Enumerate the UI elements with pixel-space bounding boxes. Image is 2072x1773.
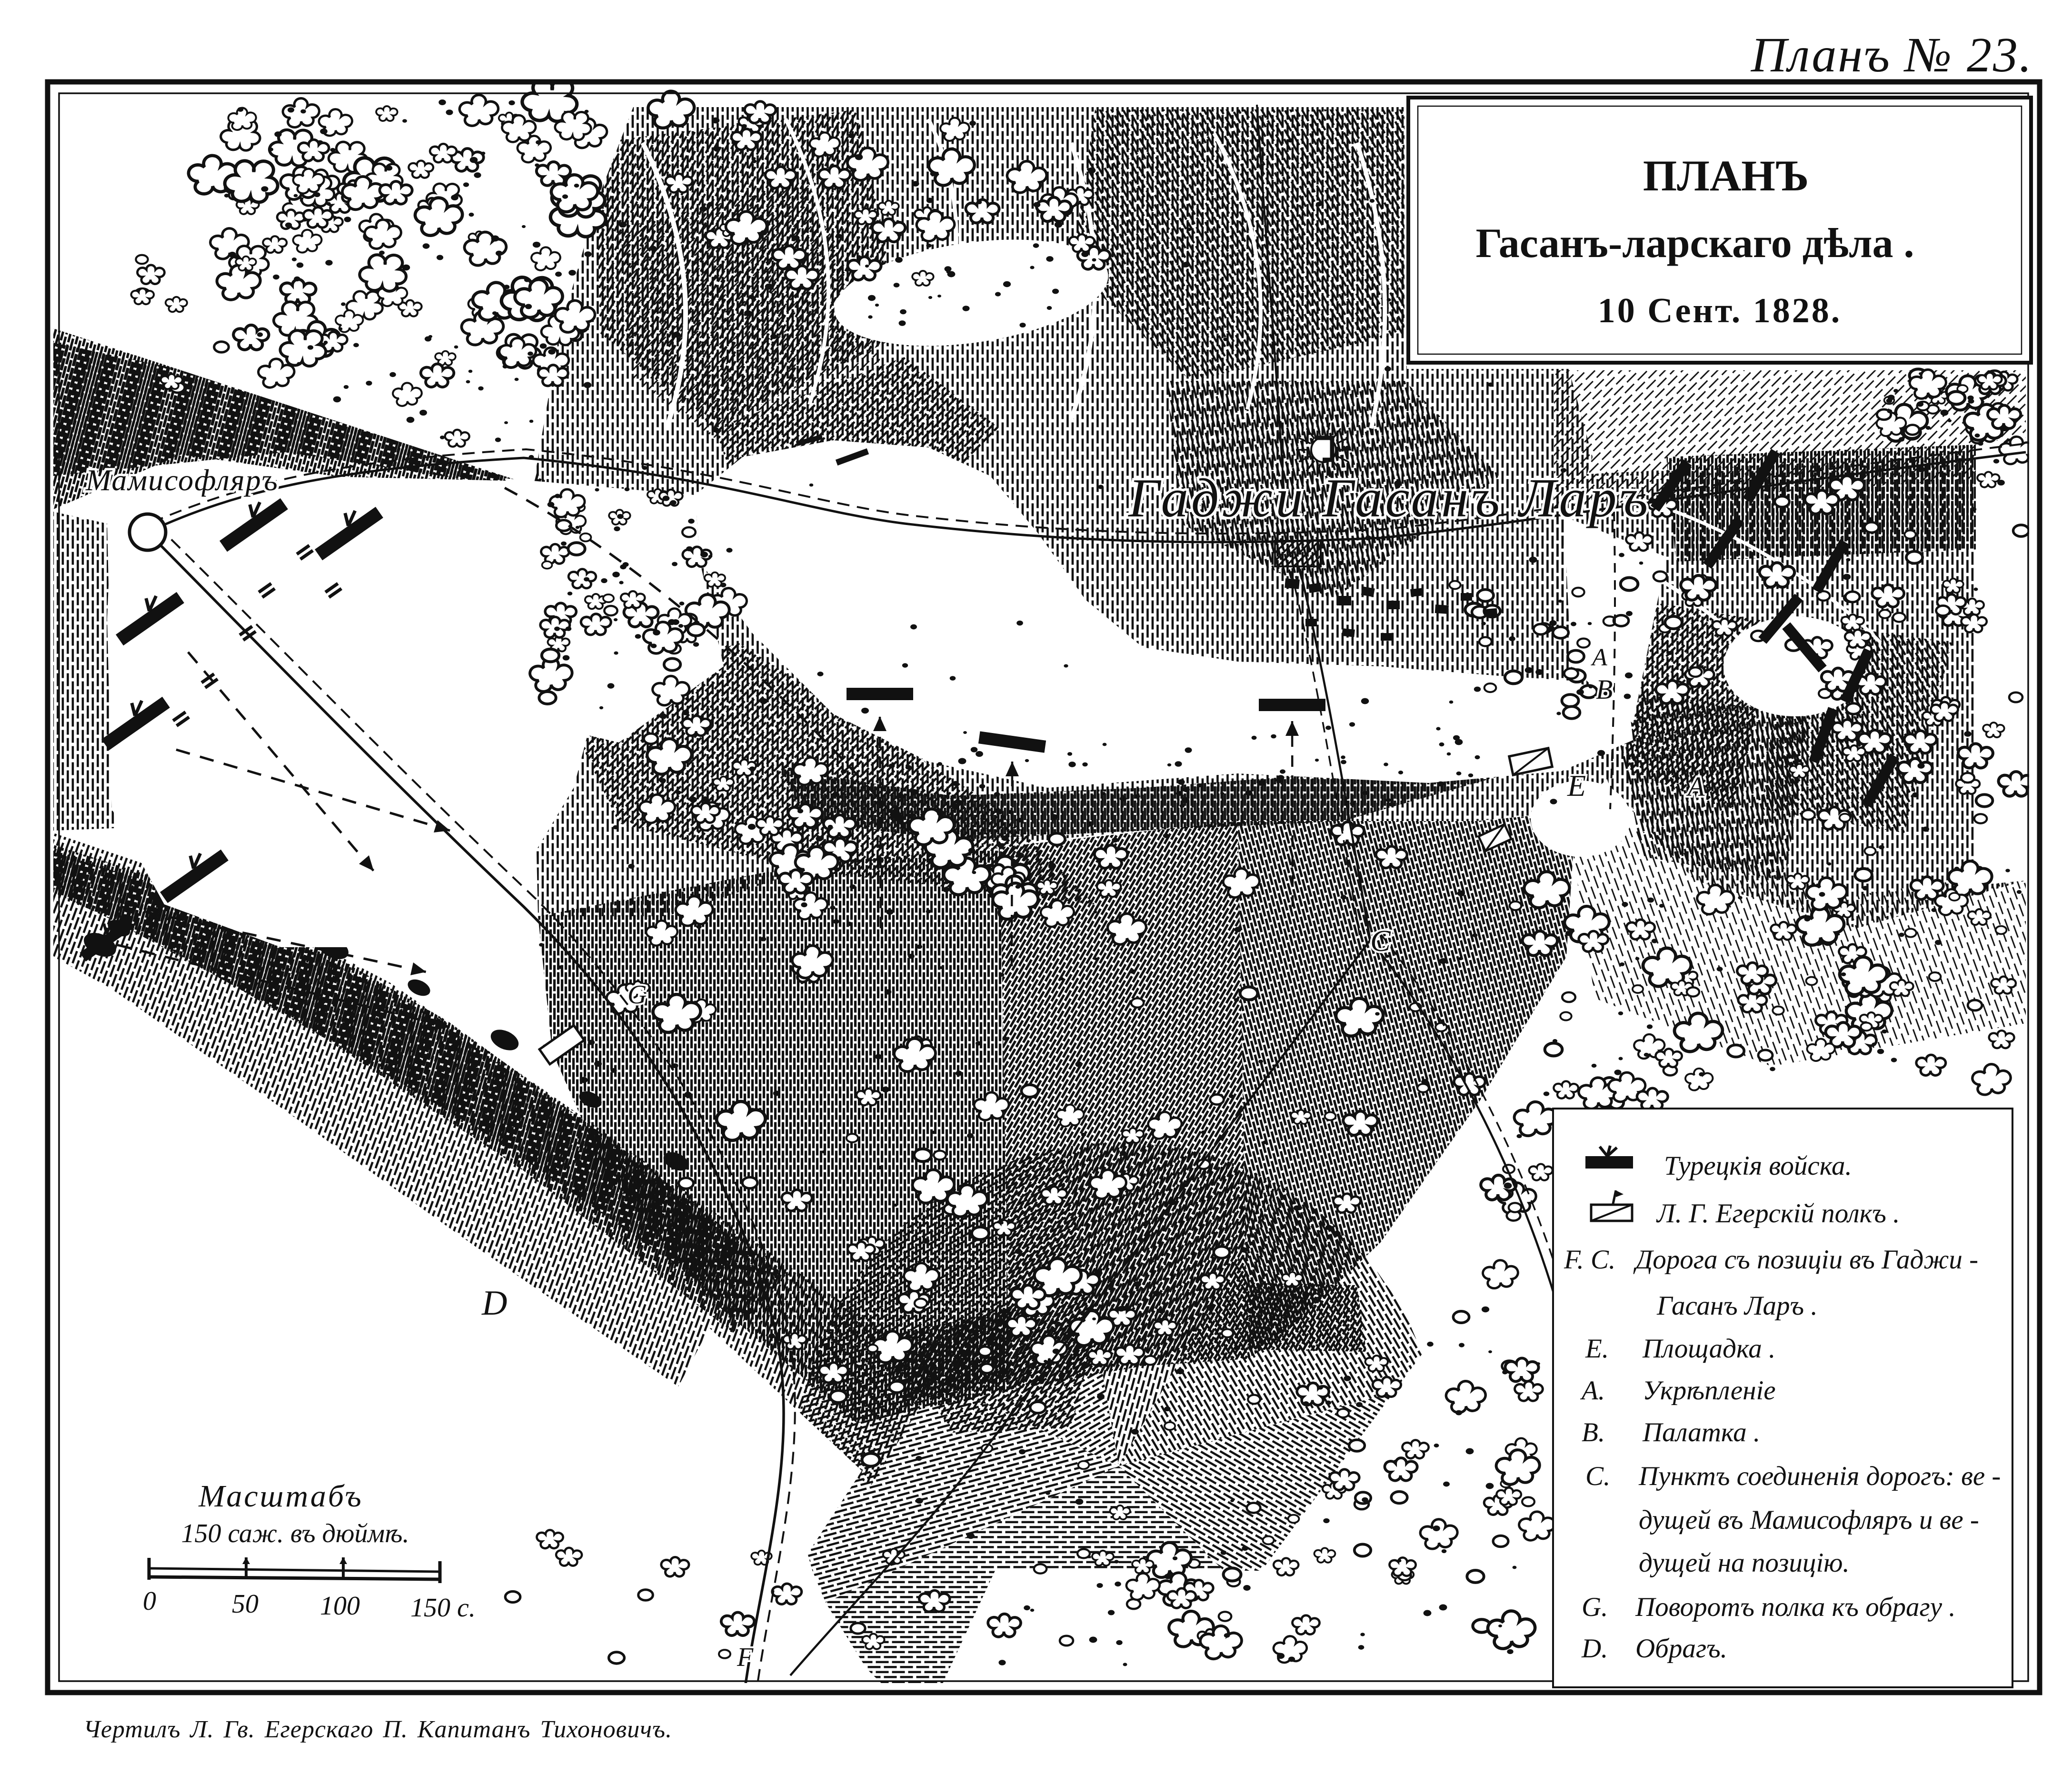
svg-text:Палатка .: Палатка . bbox=[1642, 1417, 1760, 1447]
svg-text:С.: С. bbox=[1585, 1461, 1610, 1491]
svg-text:Поворотъ полка къ обрагу .: Поворотъ полка къ обрагу . bbox=[1635, 1592, 1956, 1622]
svg-text:G: G bbox=[628, 980, 647, 1010]
svg-text:A: A bbox=[1686, 771, 1705, 802]
svg-text:0: 0 bbox=[143, 1586, 156, 1616]
svg-text:Пунктъ соединенія дорогъ: ве -: Пунктъ соединенія дорогъ: ве - bbox=[1638, 1461, 2001, 1491]
svg-text:Масштабъ: Масштабъ bbox=[198, 1479, 363, 1514]
svg-text:D.: D. bbox=[1581, 1634, 1608, 1664]
svg-text:F. C.: F. C. bbox=[1564, 1245, 1615, 1275]
svg-text:ПЛАНЪ: ПЛАНЪ bbox=[1643, 151, 1809, 200]
svg-text:Гасанъ Ларъ .: Гасанъ Ларъ . bbox=[1656, 1291, 1818, 1321]
svg-text:50: 50 bbox=[232, 1589, 259, 1619]
svg-text:10 Сент. 1828.: 10 Сент. 1828. bbox=[1598, 291, 1842, 330]
svg-text:Площадка .: Площадка . bbox=[1642, 1334, 1775, 1364]
svg-text:Мамисофляръ: Мамисофляръ bbox=[85, 463, 279, 497]
svg-text:В.: В. bbox=[1582, 1417, 1605, 1447]
svg-text:D: D bbox=[481, 1284, 507, 1323]
svg-text:Обрагъ.: Обрагъ. bbox=[1635, 1634, 1727, 1664]
svg-text:Укрѣпленіе: Укрѣпленіе bbox=[1643, 1376, 1776, 1406]
svg-text:Чертилъ Л. Гв. Егерскаго П. Ка: Чертилъ Л. Гв. Егерскаго П. Капитанъ Тих… bbox=[83, 1716, 672, 1743]
svg-text:дущей на позицію.: дущей на позицію. bbox=[1639, 1548, 1850, 1578]
svg-text:Л. Г. Егерскій полкъ .: Л. Г. Егерскій полкъ . bbox=[1656, 1199, 1900, 1228]
svg-text:C: C bbox=[1370, 924, 1391, 958]
svg-text:100: 100 bbox=[320, 1591, 360, 1621]
svg-text:А: А bbox=[1591, 644, 1607, 671]
svg-text:дущей въ Мамисофляръ и ве -: дущей въ Мамисофляръ и ве - bbox=[1639, 1505, 1979, 1535]
svg-text:Е.: Е. bbox=[1585, 1334, 1609, 1364]
svg-text:150 саж. въ дюймѣ.: 150 саж. въ дюймѣ. bbox=[181, 1519, 409, 1548]
svg-text:Турецкія войска.: Турецкія войска. bbox=[1664, 1151, 1852, 1181]
svg-text:150 с.: 150 с. bbox=[410, 1593, 476, 1623]
svg-text:B: B bbox=[1596, 674, 1613, 705]
svg-text:Гаджи Гасанъ Ларъ: Гаджи Гасанъ Ларъ bbox=[1128, 468, 1651, 528]
svg-text:F: F bbox=[737, 1643, 754, 1672]
svg-text:E: E bbox=[1567, 769, 1586, 802]
svg-text:Планъ № 23.: Планъ № 23. bbox=[1751, 28, 2033, 82]
svg-text:А.: А. bbox=[1580, 1376, 1605, 1406]
svg-text:Гасанъ-ларскаго дѣла .: Гасанъ-ларскаго дѣла . bbox=[1476, 220, 1914, 267]
svg-text:Дорога съ позицiи въ Гаджи -: Дорога съ позицiи въ Гаджи - bbox=[1633, 1245, 1978, 1275]
svg-text:G.: G. bbox=[1582, 1592, 1608, 1622]
